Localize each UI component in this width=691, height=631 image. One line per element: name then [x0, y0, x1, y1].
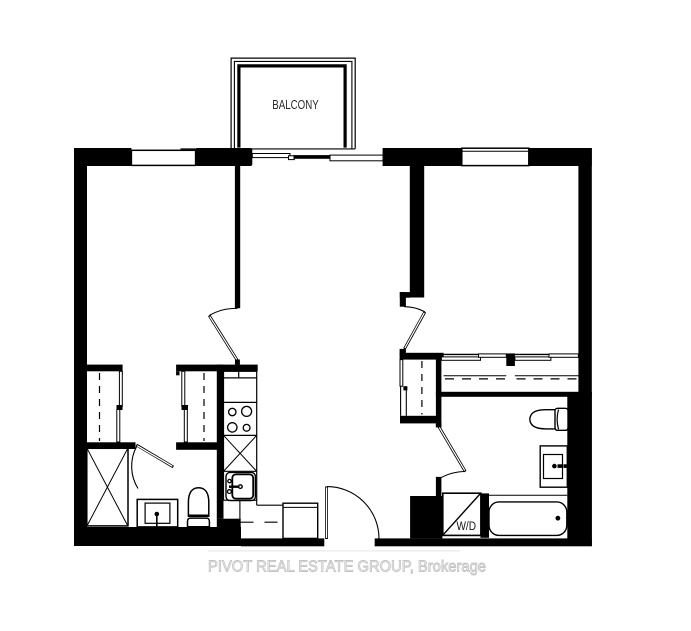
svg-text:W/D: W/D: [456, 521, 476, 533]
svg-text:PIVOT REAL ESTATE GROUP, Broke: PIVOT REAL ESTATE GROUP, Brokerage: [208, 559, 486, 576]
svg-text:BALCONY: BALCONY: [272, 98, 319, 112]
